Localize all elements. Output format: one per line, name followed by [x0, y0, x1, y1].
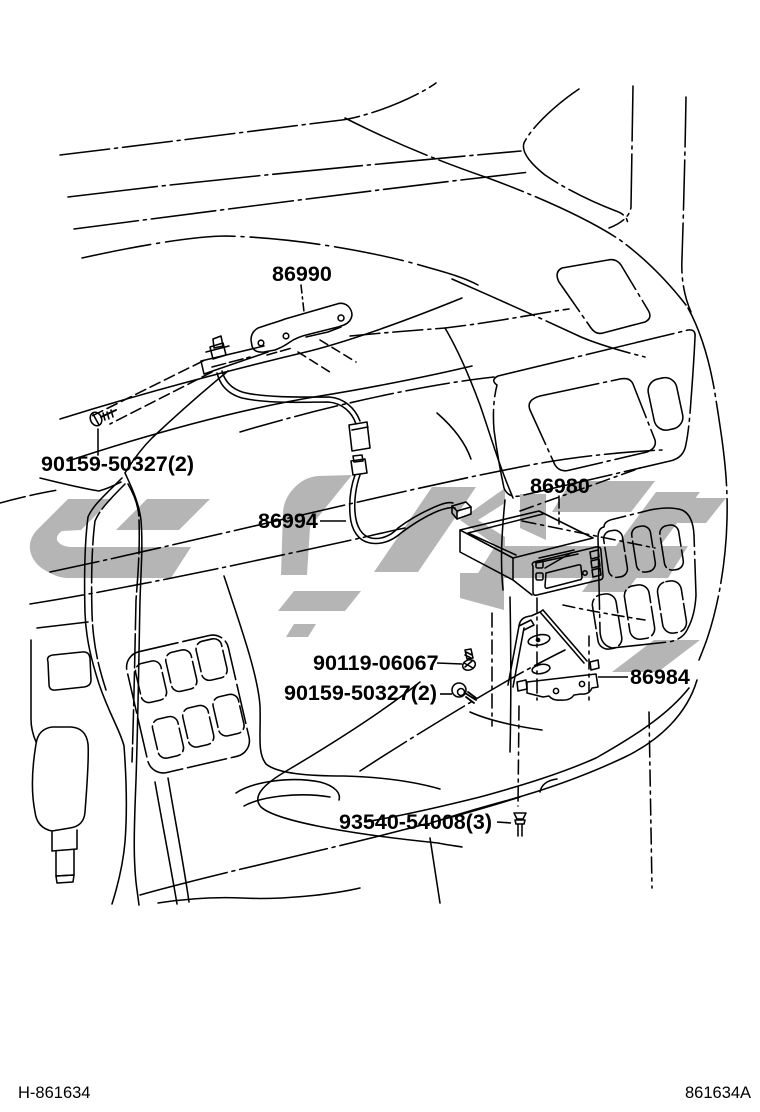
svg-text:90159-50327(2): 90159-50327(2): [41, 452, 194, 476]
svg-text:90159-50327(2): 90159-50327(2): [284, 681, 437, 705]
svg-text:861634A: 861634A: [685, 1084, 751, 1102]
svg-text:86994: 86994: [258, 509, 318, 533]
svg-text:86980: 86980: [530, 474, 590, 498]
svg-text:H-861634: H-861634: [18, 1084, 90, 1102]
svg-text:90119-06067: 90119-06067: [313, 651, 439, 675]
svg-text:93540-54008(3): 93540-54008(3): [339, 810, 492, 834]
svg-text:86984: 86984: [630, 665, 690, 689]
svg-text:86990: 86990: [272, 262, 332, 286]
